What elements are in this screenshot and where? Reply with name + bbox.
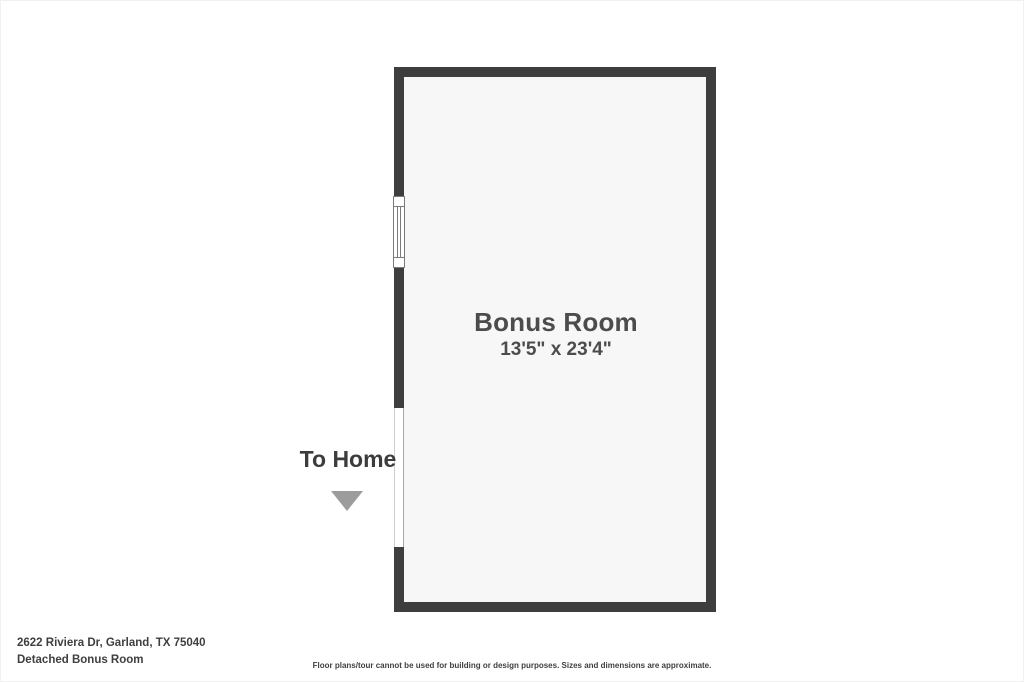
floorplan-page: Bonus Room 13'5" x 23'4" To Home 2622 Ri… xyxy=(0,0,1024,682)
arrow-down-icon xyxy=(331,491,363,511)
room-name-label: Bonus Room xyxy=(403,307,709,338)
window-pane-line xyxy=(400,207,401,257)
footer-address: 2622 Riviera Dr, Garland, TX 75040 xyxy=(17,637,206,649)
footer-disclaimer: Floor plans/tour cannot be used for buil… xyxy=(0,661,1024,670)
room-dimensions-label: 13'5" x 23'4" xyxy=(403,338,709,362)
to-home-label: To Home xyxy=(268,445,428,473)
room-label-block: Bonus Room 13'5" x 23'4" xyxy=(403,307,709,362)
window-frame-line xyxy=(394,206,404,207)
window-frame-line xyxy=(394,257,404,258)
window-icon xyxy=(393,196,405,268)
door-opening xyxy=(394,408,404,547)
window-pane-line xyxy=(397,207,398,257)
